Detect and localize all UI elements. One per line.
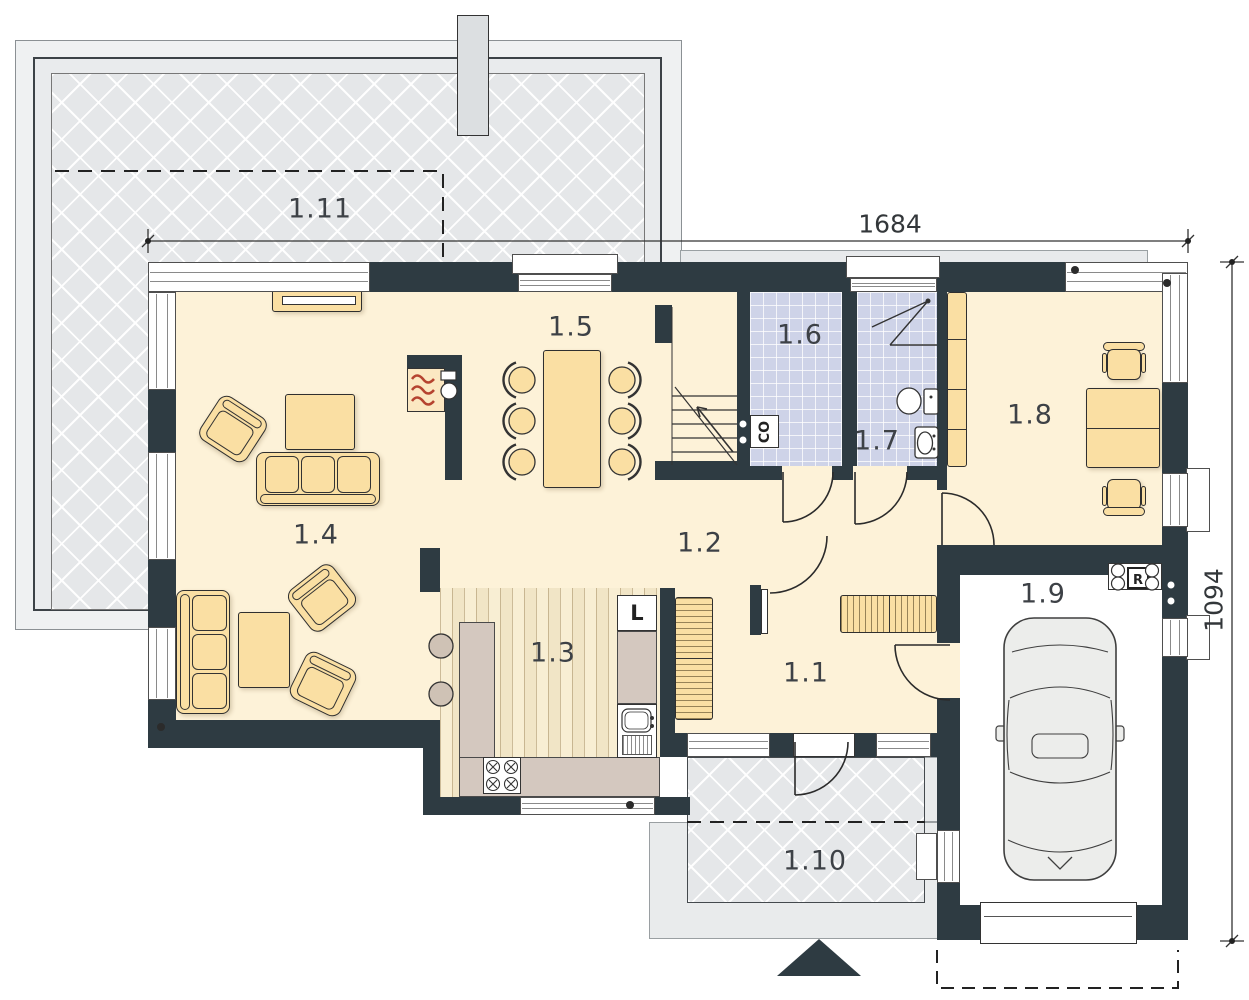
window xyxy=(937,830,960,883)
wall-garage-east xyxy=(1162,657,1188,905)
garage-door xyxy=(980,902,1137,944)
kitchen-counter-right xyxy=(617,631,657,704)
window xyxy=(687,733,770,757)
window xyxy=(520,797,655,815)
window xyxy=(876,733,931,757)
wardrobe-divider xyxy=(676,658,712,659)
door-leaf xyxy=(761,589,768,634)
sofa-seat xyxy=(192,673,227,709)
wall-stair-south xyxy=(655,461,750,480)
wall-office-east xyxy=(1162,383,1188,473)
wardrobe-divider xyxy=(948,389,966,390)
window xyxy=(1162,273,1188,383)
wall-boiler-west xyxy=(737,292,750,466)
porch xyxy=(687,757,925,903)
wall-kitchen-hall xyxy=(660,588,675,757)
wardrobe-divider xyxy=(889,596,890,632)
desk-divider xyxy=(1087,428,1159,429)
dimension-top: 1684 xyxy=(858,210,922,239)
sofa-seat xyxy=(192,634,227,670)
sofa-seat xyxy=(265,456,299,493)
wardrobe-divider xyxy=(948,339,966,340)
window-sill xyxy=(846,256,940,278)
recuperator-label: R xyxy=(1133,573,1143,588)
room-label-1-6: 1.6 xyxy=(777,320,823,351)
wall-living-south xyxy=(148,720,440,748)
sofa-seat xyxy=(192,595,227,631)
sink-icon xyxy=(617,704,657,758)
sink-drainer xyxy=(622,735,652,755)
office-chair-arm xyxy=(1102,486,1107,506)
wall-garage-west xyxy=(937,575,960,643)
sideboard-slot xyxy=(282,296,356,305)
sofa xyxy=(256,452,380,506)
room-label-1-2: 1.2 xyxy=(677,528,723,559)
fireplace-chimney-wall xyxy=(445,355,462,480)
wardrobe xyxy=(947,292,967,467)
office-chair-arm xyxy=(1141,486,1146,506)
room-label-1-7: 1.7 xyxy=(854,426,900,457)
desk xyxy=(1086,388,1160,468)
window xyxy=(850,278,937,292)
window xyxy=(518,274,612,292)
room-label-1-3: 1.3 xyxy=(530,638,576,669)
entrance-marker-icon xyxy=(777,939,861,976)
garage-door-line xyxy=(984,916,1132,917)
wall-boiler-south xyxy=(750,466,782,480)
dimension-right: 1094 xyxy=(1200,568,1229,632)
window xyxy=(1162,618,1188,657)
wall-stub-living xyxy=(420,548,440,592)
wall-garage-west xyxy=(937,698,960,830)
side-table xyxy=(238,612,290,688)
room-label-1-9: 1.9 xyxy=(1020,579,1066,610)
wall-stub-hall xyxy=(750,585,761,635)
office-chair-back xyxy=(1103,507,1145,516)
room-label-1-10: 1.10 xyxy=(783,846,847,877)
window xyxy=(148,292,176,390)
room-label-1-4: 1.4 xyxy=(293,520,339,551)
sofa xyxy=(176,590,230,714)
window-sill xyxy=(1186,468,1210,532)
wall-office-east xyxy=(1162,527,1188,545)
boiler-unit: CO xyxy=(750,415,779,448)
wardrobe xyxy=(840,595,937,633)
office-chair xyxy=(1107,349,1141,380)
window xyxy=(148,262,370,292)
doorway-garage xyxy=(937,643,960,698)
recuperator-label-box: R xyxy=(1127,567,1149,589)
stove-icon xyxy=(483,757,521,794)
sideboard xyxy=(272,289,362,312)
sofa-back xyxy=(180,594,190,710)
room-label-1-11: 1.11 xyxy=(288,194,352,225)
driveway-dashed-line xyxy=(937,950,1178,988)
window xyxy=(148,627,176,700)
wall-bath-south xyxy=(907,466,937,480)
recuperator-unit: R xyxy=(1108,563,1162,590)
sofa-back xyxy=(260,494,376,504)
wall-garage-east xyxy=(1162,545,1188,618)
fridge-label: L xyxy=(630,601,643,625)
window-sill xyxy=(512,254,618,274)
office-chair-arm xyxy=(1141,353,1146,373)
fridge-unit: L xyxy=(617,595,657,631)
window xyxy=(148,452,176,560)
wardrobe xyxy=(675,597,713,720)
office-chair xyxy=(1107,479,1141,510)
wall-stair-stub xyxy=(655,305,672,343)
dining-table xyxy=(543,350,601,488)
office-chair-arm xyxy=(1102,353,1107,373)
sofa-seat xyxy=(337,456,371,493)
chimney-icon xyxy=(457,15,489,136)
floor-garage xyxy=(960,575,1162,905)
window-sill xyxy=(916,833,937,880)
wall-garage-west xyxy=(937,883,960,905)
wall-boiler-south xyxy=(832,466,853,480)
room-label-1-8: 1.8 xyxy=(1007,400,1053,431)
boiler-label: CO xyxy=(757,420,773,442)
sofa-seat xyxy=(301,456,335,493)
fireplace-icon xyxy=(407,368,445,412)
wardrobe-divider xyxy=(948,429,966,430)
room-label-1-5: 1.5 xyxy=(548,312,594,343)
room-label-1-1: 1.1 xyxy=(783,658,829,689)
wall-bath-office xyxy=(937,292,947,490)
window xyxy=(1162,473,1188,527)
entrance-threshold xyxy=(793,733,855,757)
coffee-table xyxy=(285,394,355,450)
doorway-office xyxy=(937,490,947,545)
floor-plan: L xyxy=(0,0,1249,1000)
